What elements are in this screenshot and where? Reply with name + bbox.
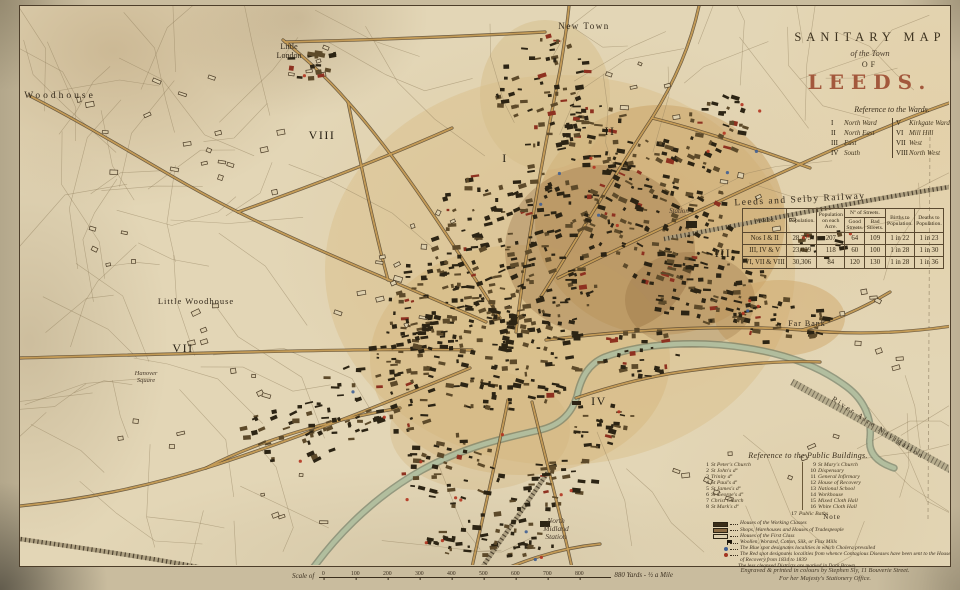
field-boundary <box>711 6 744 85</box>
ward-entry: VKirkgate Ward <box>896 118 953 128</box>
field-boundary <box>138 6 175 72</box>
building-block <box>583 415 589 417</box>
field-boundary <box>31 424 104 472</box>
building-block <box>472 525 481 530</box>
building-block <box>545 502 548 506</box>
building-block <box>524 372 527 377</box>
cholera-spot <box>597 214 600 217</box>
building-block <box>578 58 581 60</box>
building-block <box>497 103 504 108</box>
ward-entry: VIIINorth West <box>896 148 953 158</box>
building-block <box>754 322 759 326</box>
building-block <box>485 356 493 360</box>
building-block <box>511 520 516 525</box>
contagion-spot <box>459 498 462 501</box>
outskirt-building <box>106 263 111 267</box>
building-block <box>562 460 568 462</box>
field-boundary <box>112 380 128 438</box>
building-block <box>455 340 458 342</box>
building-block <box>491 395 497 400</box>
building-block <box>412 445 420 450</box>
field-boundary <box>626 469 704 553</box>
building-block <box>582 163 590 168</box>
building-block <box>540 296 544 300</box>
building-block <box>722 94 729 99</box>
building-block <box>355 429 360 433</box>
ward-entry: IVSouth <box>831 148 892 158</box>
building-block <box>520 542 528 546</box>
building-block <box>731 95 740 101</box>
building-block <box>446 227 450 231</box>
building-block <box>486 311 490 314</box>
building-block <box>528 490 531 493</box>
building-block <box>509 401 512 404</box>
building-block <box>643 220 649 224</box>
building-block <box>538 546 541 550</box>
building-block <box>492 392 496 395</box>
building-block <box>494 541 497 545</box>
outskirt-building <box>133 419 139 424</box>
outskirt-building <box>170 167 179 172</box>
contagion-spot <box>748 299 751 302</box>
outskirt-building <box>840 311 845 316</box>
building-block <box>455 542 462 546</box>
outskirt-building <box>260 147 268 153</box>
building-block <box>602 170 611 175</box>
field-boundary <box>25 378 151 405</box>
outskirt-building <box>89 226 96 231</box>
contagion-spot <box>560 493 563 496</box>
building-block <box>507 385 513 389</box>
building-block <box>507 554 513 558</box>
mill-flag-icon <box>712 540 728 546</box>
outskirt-building <box>230 368 236 374</box>
building-block <box>459 343 463 348</box>
building-block <box>569 142 576 147</box>
building-block <box>559 257 566 260</box>
building-block <box>534 477 540 479</box>
building-block <box>612 213 616 216</box>
building-block <box>618 118 622 123</box>
outskirt-building <box>200 327 207 333</box>
building-block <box>739 124 743 127</box>
building-block <box>500 523 504 526</box>
building-block <box>594 285 597 288</box>
building-block <box>460 299 463 302</box>
outskirt-building <box>152 78 161 84</box>
building-block <box>500 88 505 92</box>
building-block <box>522 314 526 316</box>
ward-numeral-iii: III <box>715 247 732 260</box>
outskirt-building <box>299 473 303 476</box>
building-block <box>522 553 527 557</box>
building-block <box>460 349 466 354</box>
building-block <box>727 263 730 265</box>
building-block <box>552 301 555 304</box>
building-block <box>377 357 380 359</box>
building-block <box>505 249 510 251</box>
building-block <box>673 264 681 268</box>
building-block <box>470 378 474 380</box>
building-block <box>786 334 792 338</box>
building-block <box>741 320 744 324</box>
building-block <box>763 340 770 344</box>
contagion-spot <box>740 103 743 106</box>
building-block <box>748 279 752 282</box>
building-block <box>615 153 618 155</box>
building-block <box>452 318 455 322</box>
building-block <box>392 324 397 329</box>
building-block <box>664 364 667 369</box>
building-block <box>537 395 545 398</box>
building-block <box>556 39 559 44</box>
map-label-far-bank: Far Bank <box>788 320 826 329</box>
scale-prefix: Scale of <box>292 572 314 580</box>
outskirt-building <box>855 341 861 346</box>
building-block <box>279 436 285 440</box>
building-block <box>495 198 498 202</box>
outskirt-building <box>261 493 265 496</box>
building-block <box>581 109 586 113</box>
building-block <box>733 290 741 295</box>
building-block <box>488 300 495 305</box>
building-block <box>689 112 692 116</box>
building-block <box>518 518 526 523</box>
building-block <box>574 426 577 428</box>
building-block <box>734 101 739 104</box>
railway-base <box>20 536 294 565</box>
field-boundary <box>74 381 133 393</box>
building-block <box>504 524 510 528</box>
building-block <box>321 417 329 419</box>
building-block <box>631 373 634 376</box>
building-block <box>537 142 540 146</box>
field-boundary <box>684 42 768 84</box>
outskirt-building <box>218 160 226 164</box>
public-buildings-left: 1St Peter's Church 2St John's dº 3Trinit… <box>700 462 802 510</box>
building-block <box>537 347 541 349</box>
ward-numeral-viii: VIII <box>309 129 336 142</box>
field-boundary <box>328 42 473 91</box>
building-block <box>474 302 477 305</box>
building-block <box>709 319 712 322</box>
building-block <box>402 472 407 475</box>
contagion-spot <box>419 460 422 463</box>
building-block <box>499 385 502 390</box>
field-boundary <box>204 103 268 141</box>
cholera-spot <box>558 172 561 175</box>
building-block <box>506 322 514 325</box>
building-block <box>786 329 790 333</box>
outskirt-building <box>110 170 118 175</box>
building-block <box>711 101 718 106</box>
building-block <box>365 421 372 426</box>
building-block <box>421 275 427 280</box>
building-block <box>307 440 311 445</box>
building-block <box>517 507 521 511</box>
building-block <box>439 531 447 533</box>
building-block <box>481 513 485 517</box>
cholera-spot <box>755 150 758 153</box>
legend-note: Note Houses of the Working Classes Shops… <box>712 513 952 570</box>
building-block <box>540 38 543 42</box>
building-block <box>393 429 398 434</box>
building-block <box>271 409 277 414</box>
building-block <box>460 440 468 444</box>
building-block <box>477 187 480 192</box>
ward-entry: VIMill Hill <box>896 128 953 138</box>
ward-entry: VIIWest <box>896 138 953 148</box>
outskirt-building <box>833 434 839 439</box>
building-block <box>457 255 461 259</box>
building-block <box>673 288 677 292</box>
building-block <box>742 125 749 130</box>
building-block <box>434 473 442 475</box>
building-block <box>438 331 441 335</box>
building-block <box>522 304 531 309</box>
building-block <box>527 204 533 206</box>
building-block <box>503 64 509 68</box>
public-buildings-right: 9St Mary's Church 10Dispensary 11General… <box>802 462 915 510</box>
building-block <box>537 532 543 535</box>
building-block <box>306 411 313 416</box>
building-block <box>270 459 275 462</box>
building-block <box>422 327 429 331</box>
building-block <box>554 84 560 89</box>
outskirt-building <box>306 70 313 73</box>
building-block <box>323 376 330 379</box>
field-boundary <box>80 481 203 544</box>
field-boundary <box>43 297 137 358</box>
building-block <box>511 532 515 536</box>
building-block <box>576 112 582 114</box>
building-block <box>517 333 523 338</box>
building-block <box>545 507 550 511</box>
building-block <box>550 469 554 474</box>
structure-block <box>572 401 581 405</box>
outskirt-building <box>323 45 330 50</box>
building-block <box>501 343 508 347</box>
building-block <box>504 77 508 80</box>
building-block <box>549 461 556 464</box>
building-block <box>553 58 556 63</box>
building-block <box>524 383 530 386</box>
contagion-spot <box>593 166 596 169</box>
building-block <box>537 208 544 212</box>
building-block <box>490 408 494 411</box>
building-block <box>558 502 561 506</box>
ward-entry: INorth Ward <box>831 118 892 128</box>
building-block <box>638 374 643 379</box>
building-block <box>492 344 497 346</box>
building-block <box>447 484 451 487</box>
outskirt-building <box>421 244 427 249</box>
building-block <box>406 276 411 278</box>
outskirt-building <box>271 189 277 195</box>
outskirt-building <box>206 148 212 153</box>
building-block <box>543 490 549 494</box>
field-boundary <box>315 10 420 56</box>
building-block <box>316 64 322 66</box>
building-block <box>578 405 583 408</box>
outskirt-building <box>102 131 108 134</box>
map-label-little-london: Little London <box>277 43 302 60</box>
building-block <box>640 348 643 352</box>
tradespeople-swatch-icon <box>712 528 728 534</box>
building-block <box>529 236 533 238</box>
building-block <box>729 121 734 125</box>
building-block <box>552 364 555 366</box>
first-class-swatch-icon <box>712 534 728 540</box>
building-block <box>423 373 429 376</box>
building-block <box>494 208 503 212</box>
outskirt-building <box>208 75 216 80</box>
building-block <box>667 259 675 264</box>
building-block <box>427 316 431 320</box>
building-block <box>503 341 506 344</box>
building-block <box>420 399 428 401</box>
building-block <box>239 426 247 431</box>
building-block <box>445 552 450 555</box>
building-block <box>630 415 634 417</box>
table-row: III, IV & V 23,039 118 60 100 1 in 28 1 … <box>743 245 944 257</box>
outskirt-building <box>262 393 271 399</box>
building-block <box>447 315 452 319</box>
building-block <box>337 383 341 387</box>
building-block <box>444 261 448 264</box>
wards-reference-heading: Reference to the Wards. <box>831 105 953 114</box>
wards-reference-left: INorth Ward IINorth East IIIEast IVSouth <box>831 118 892 158</box>
building-block <box>783 297 790 302</box>
field-boundary <box>101 186 202 191</box>
field-boundary <box>134 358 263 424</box>
outskirt-building <box>131 260 135 264</box>
building-block <box>542 173 545 176</box>
outskirt-building <box>118 436 124 440</box>
building-block <box>584 70 592 74</box>
field-boundary <box>171 217 304 223</box>
building-block <box>587 195 592 200</box>
map-label-hanover-square: Hanover Square <box>135 370 158 384</box>
building-block <box>302 438 307 443</box>
building-block <box>591 479 599 484</box>
building-block <box>412 287 417 289</box>
outskirt-building <box>144 112 152 118</box>
building-block <box>456 433 460 438</box>
building-block <box>690 118 695 122</box>
building-block <box>551 254 555 256</box>
cholera-spot <box>539 203 542 206</box>
building-entry: 8St Mark's dº <box>700 504 802 510</box>
building-block <box>443 318 450 323</box>
outskirt-building <box>121 231 128 235</box>
table-header-row: WARDS. Population. Population on each Ac… <box>743 209 944 218</box>
building-block <box>726 106 730 110</box>
building-block <box>529 540 532 544</box>
building-block <box>459 335 463 339</box>
cholera-spot <box>726 171 729 174</box>
building-block <box>584 116 589 121</box>
field-boundary <box>905 375 920 448</box>
outskirt-building <box>201 161 207 165</box>
map-label-woodhouse: Woodhouse <box>24 91 96 101</box>
building-block <box>531 537 537 540</box>
building-block <box>545 362 553 367</box>
building-block <box>580 256 584 260</box>
building-block <box>629 351 635 356</box>
sanitary-map-of-leeds: New Town Little London Woodhouse Little … <box>0 0 960 590</box>
building-block <box>515 241 519 245</box>
field-boundary <box>219 233 307 325</box>
building-block <box>332 432 338 434</box>
building-block <box>426 455 431 459</box>
building-block <box>521 270 524 273</box>
building-block <box>570 137 574 141</box>
contagion-spot <box>441 539 444 542</box>
map-title-name: LEEDS. <box>792 70 948 94</box>
contagion-spot <box>758 109 761 112</box>
ward-statistics-table: WARDS. Population. Population on each Ac… <box>742 208 944 269</box>
outskirt-building <box>861 289 868 295</box>
building-block <box>448 223 457 227</box>
field-boundary <box>259 447 293 552</box>
building-block <box>386 361 391 363</box>
contagion-spot <box>570 489 573 492</box>
field-boundary <box>147 444 155 547</box>
building-block <box>528 484 534 486</box>
building-block <box>571 470 576 472</box>
leader-dash <box>730 530 738 531</box>
building-block <box>264 450 271 454</box>
credit-line-1: Engraved & printed in colours by Stephen… <box>690 567 960 575</box>
cholera-spot <box>525 530 528 533</box>
building-block <box>400 332 405 336</box>
building-block <box>632 333 636 338</box>
building-block <box>641 280 646 284</box>
contagion-spot <box>383 416 386 419</box>
building-block <box>693 264 698 267</box>
building-block <box>569 201 572 204</box>
contagion-spot <box>406 498 409 501</box>
building-block <box>582 431 589 433</box>
scale-line: 0 100 200 300 400 500 600 700 800 <box>319 567 611 578</box>
building-block <box>412 332 416 335</box>
building-block <box>597 423 602 426</box>
building-block <box>530 179 539 184</box>
building-block <box>605 151 608 155</box>
ward-numeral-iv: IV <box>591 395 607 408</box>
building-block <box>479 294 482 297</box>
building-block <box>578 479 586 483</box>
building-block <box>270 415 278 421</box>
field-boundary <box>83 179 117 302</box>
building-block <box>631 364 638 369</box>
building-block <box>540 467 547 471</box>
building-block <box>582 127 586 129</box>
building-block <box>332 418 337 423</box>
outskirt-building <box>91 246 98 252</box>
building-block <box>452 536 456 540</box>
contagion-spot <box>501 433 504 436</box>
building-block <box>634 328 639 333</box>
building-block <box>553 297 557 300</box>
building-block <box>764 300 768 305</box>
field-boundary <box>201 367 331 391</box>
contagion-spot <box>707 150 710 153</box>
building-block <box>816 309 824 313</box>
building-block <box>471 404 474 408</box>
building-block <box>525 503 530 507</box>
